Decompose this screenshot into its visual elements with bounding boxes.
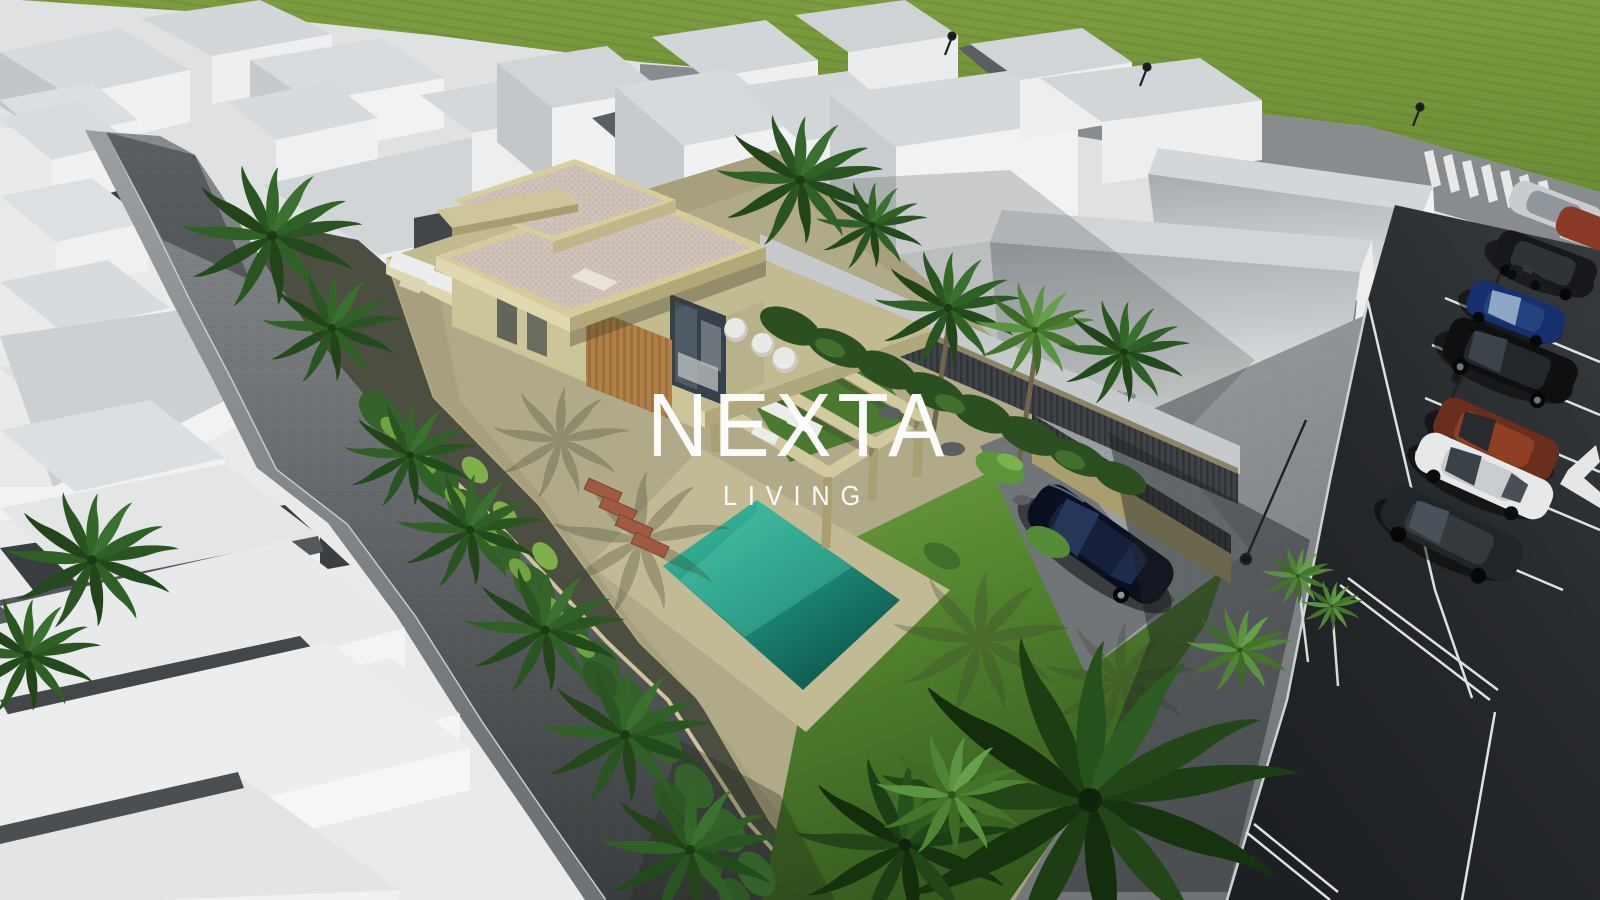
svg-text:LIVING: LIVING [723,480,871,511]
svg-text:NEXTA: NEXTA [647,376,950,476]
